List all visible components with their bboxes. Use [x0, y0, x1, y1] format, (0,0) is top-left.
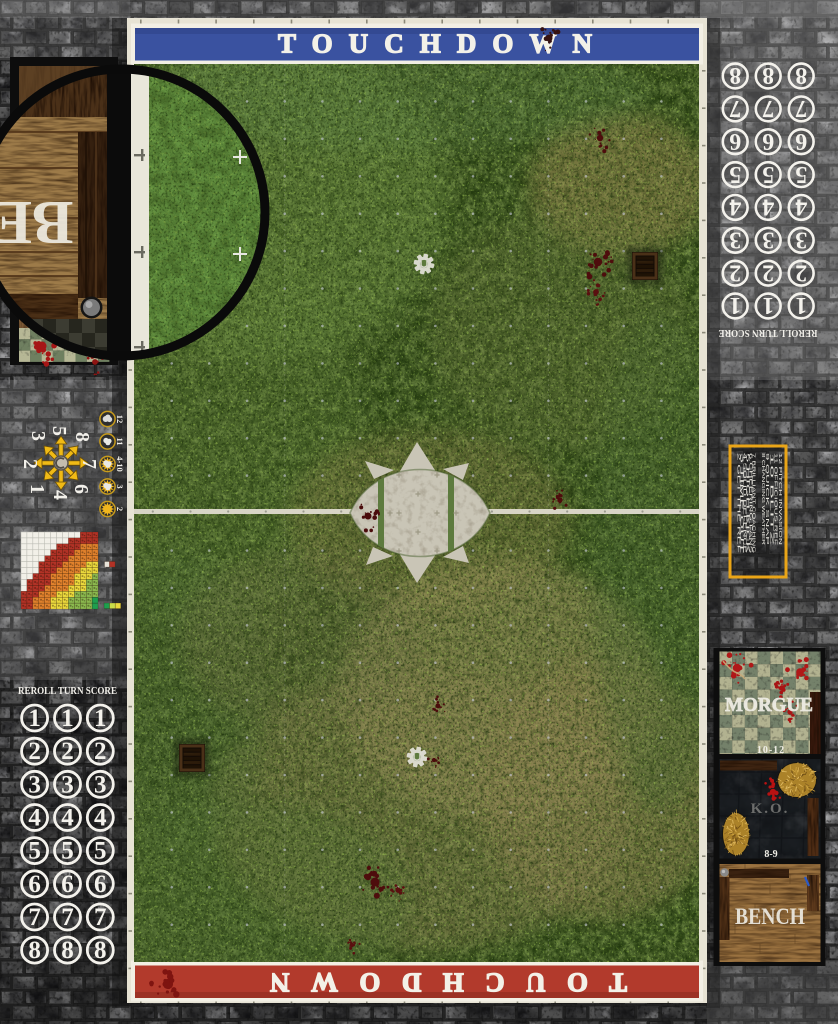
svg-text:5: 5	[729, 161, 741, 187]
svg-text:3: 3	[28, 771, 41, 798]
svg-text:REROLL TURN SCORE: REROLL TURN SCORE	[719, 327, 818, 338]
svg-text:4: 4	[795, 194, 807, 220]
svg-text:6: 6	[762, 128, 774, 154]
svg-text:2: 2	[729, 259, 741, 285]
svg-text:6: 6	[795, 128, 807, 154]
svg-text:7: 7	[762, 95, 774, 121]
svg-text:6: 6	[729, 128, 741, 154]
svg-text:2: 2	[94, 738, 107, 765]
svg-text:1: 1	[61, 705, 74, 732]
svg-text:3: 3	[115, 484, 125, 488]
svg-text:3: 3	[795, 227, 807, 253]
svg-text:5: 5	[94, 838, 107, 865]
svg-text:3: 3	[61, 771, 74, 798]
svg-text:7: 7	[795, 95, 807, 121]
svg-text:1: 1	[795, 292, 807, 318]
svg-text:4: 4	[762, 194, 774, 220]
svg-text:8: 8	[28, 937, 41, 964]
svg-text:1: 1	[26, 484, 48, 494]
svg-text:TOUCHDOWN: TOUCHDOWN	[255, 968, 627, 998]
svg-text:7: 7	[28, 904, 41, 931]
svg-text:7: 7	[78, 459, 100, 469]
svg-text:4: 4	[729, 194, 741, 220]
svg-text:3: 3	[27, 431, 49, 441]
svg-text:8-9: 8-9	[764, 849, 777, 860]
svg-text:5: 5	[762, 161, 774, 187]
svg-text:7: 7	[729, 95, 741, 121]
svg-text:1: 1	[94, 705, 107, 732]
svg-text:8: 8	[71, 432, 93, 442]
svg-text:11: 11	[115, 437, 125, 445]
svg-text:7 BRILLIANT COACHING: 7 BRILLIANT COACHING	[752, 453, 757, 553]
svg-text:8: 8	[729, 62, 741, 88]
svg-text:5: 5	[28, 838, 41, 865]
svg-text:3: 3	[94, 771, 107, 798]
svg-text:2: 2	[28, 738, 41, 765]
svg-text:8: 8	[61, 937, 74, 964]
svg-text:12 PITCH INVASION: 12 PITCH INVASION	[778, 453, 783, 545]
svg-text:12: 12	[115, 415, 125, 424]
svg-text:K.O.: K.O.	[751, 801, 790, 817]
svg-text:8: 8	[795, 62, 807, 88]
svg-text:4-10: 4-10	[115, 456, 125, 472]
svg-text:10-12: 10-12	[757, 745, 785, 756]
svg-text:1: 1	[762, 292, 774, 318]
svg-text:7: 7	[61, 904, 74, 931]
svg-text:3: 3	[762, 227, 774, 253]
svg-text:BENCH: BENCH	[735, 904, 805, 929]
svg-text:3: 3	[729, 227, 741, 253]
svg-text:2: 2	[115, 507, 125, 511]
svg-text:2: 2	[762, 259, 774, 285]
svg-text:8: 8	[94, 937, 107, 964]
svg-text:6: 6	[28, 871, 41, 898]
svg-text:1: 1	[28, 705, 41, 732]
svg-text:6: 6	[61, 871, 74, 898]
svg-text:8: 8	[762, 62, 774, 88]
svg-text:2: 2	[19, 459, 41, 469]
svg-text:4: 4	[61, 805, 74, 832]
svg-text:BE: BE	[0, 188, 73, 256]
svg-text:5: 5	[795, 161, 807, 187]
svg-text:4: 4	[28, 805, 41, 832]
svg-text:5: 5	[61, 838, 74, 865]
svg-text:6: 6	[94, 871, 107, 898]
svg-text:4: 4	[49, 490, 71, 500]
svg-text:2: 2	[61, 738, 74, 765]
svg-text:7: 7	[94, 904, 107, 931]
svg-text:REROLL TURN SCORE: REROLL TURN SCORE	[18, 686, 117, 697]
svg-text:1: 1	[729, 292, 741, 318]
svg-text:2: 2	[795, 259, 807, 285]
svg-text:5: 5	[48, 426, 70, 436]
svg-text:4: 4	[94, 805, 107, 832]
svg-text:MORGUE: MORGUE	[725, 695, 813, 716]
svg-text:6: 6	[70, 484, 92, 494]
